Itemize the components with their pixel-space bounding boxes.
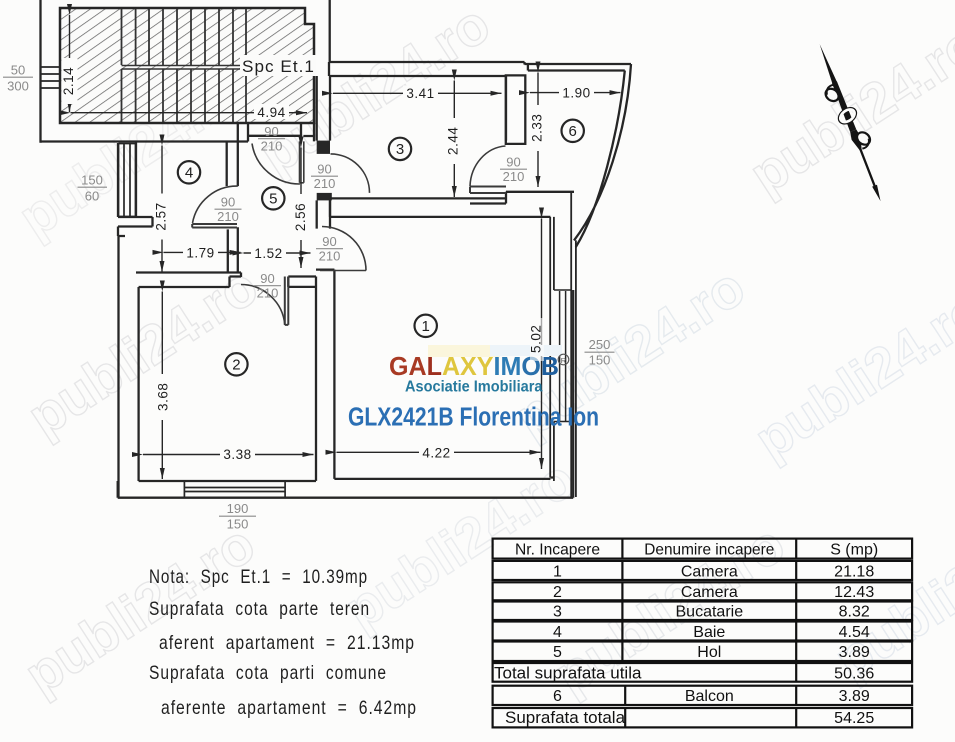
svg-text:2.44: 2.44 (446, 127, 461, 155)
svg-text:300: 300 (7, 79, 29, 94)
svg-text:6: 6 (553, 688, 562, 705)
svg-text:4.94: 4.94 (257, 105, 285, 120)
svg-text:2: 2 (553, 584, 562, 601)
svg-text:1.52: 1.52 (254, 246, 282, 261)
svg-text:5: 5 (553, 644, 562, 661)
svg-text:90: 90 (264, 124, 278, 139)
svg-text:1: 1 (553, 563, 562, 580)
svg-text:1.79: 1.79 (186, 245, 214, 260)
svg-text:5.02: 5.02 (528, 325, 543, 353)
svg-text:Denumire incapere: Denumire incapere (644, 542, 774, 559)
svg-text:150: 150 (227, 517, 249, 532)
svg-text:210: 210 (257, 286, 279, 301)
svg-text:Asociatie Imobiliara: Asociatie Imobiliara (405, 379, 543, 396)
svg-text:3.68: 3.68 (156, 383, 171, 411)
svg-text:aferente apartament = 6.42mp: aferente apartament = 6.42mp (161, 697, 417, 719)
svg-text:Camera: Camera (681, 584, 738, 601)
svg-text:3.89: 3.89 (839, 644, 870, 661)
svg-text:54.25: 54.25 (834, 710, 874, 727)
svg-text:6: 6 (569, 123, 577, 140)
svg-text:21.18: 21.18 (834, 563, 874, 580)
svg-text:210: 210 (314, 176, 336, 191)
svg-text:1.90: 1.90 (562, 86, 590, 101)
svg-text:R: R (561, 356, 567, 365)
svg-text:3.89: 3.89 (839, 688, 870, 705)
svg-text:3.38: 3.38 (223, 447, 251, 462)
svg-text:4: 4 (553, 624, 562, 641)
svg-text:4.22: 4.22 (422, 446, 450, 461)
svg-text:90: 90 (260, 271, 274, 286)
svg-text:Bucatarie: Bucatarie (676, 604, 744, 621)
svg-text:90: 90 (322, 234, 336, 249)
svg-text:4.54: 4.54 (839, 624, 870, 641)
svg-text:Suprafata cota parti comune: Suprafata cota parti comune (149, 662, 387, 684)
svg-text:150: 150 (589, 353, 611, 368)
svg-text:210: 210 (503, 169, 525, 184)
svg-text:90: 90 (317, 162, 331, 177)
svg-text:50: 50 (11, 63, 25, 78)
svg-text:2: 2 (232, 357, 240, 374)
svg-text:Hol: Hol (697, 644, 721, 661)
svg-text:3: 3 (396, 141, 404, 158)
svg-text:Nota: Spc Et.1 = 10.39mp: Nota: Spc Et.1 = 10.39mp (149, 566, 368, 588)
svg-text:50.36: 50.36 (834, 665, 874, 682)
svg-text:3.41: 3.41 (406, 86, 434, 101)
svg-text:90: 90 (221, 195, 235, 210)
svg-text:S (mp): S (mp) (830, 542, 878, 559)
svg-text:1: 1 (422, 318, 430, 335)
svg-text:Total suprafata utila: Total suprafata utila (494, 663, 642, 682)
svg-text:4: 4 (185, 165, 193, 182)
svg-text:GLX2421B Florentina Ion: GLX2421B Florentina Ion (348, 404, 599, 432)
svg-text:Suprafata cota parte teren: Suprafata cota parte teren (149, 598, 370, 620)
svg-text:Balcon: Balcon (685, 688, 734, 705)
svg-text:12.43: 12.43 (834, 584, 874, 601)
svg-text:Camera: Camera (681, 563, 738, 580)
svg-text:Suprafata totala: Suprafata totala (505, 708, 626, 727)
svg-text:3: 3 (553, 604, 562, 621)
svg-text:Spc Et.1: Spc Et.1 (242, 58, 315, 76)
svg-text:2.57: 2.57 (153, 202, 168, 230)
svg-text:2.14: 2.14 (61, 67, 76, 95)
svg-text:aferent apartament = 21.13mp: aferent apartament = 21.13mp (159, 632, 415, 654)
svg-text:210: 210 (261, 139, 283, 154)
svg-text:210: 210 (319, 249, 341, 264)
svg-text:8.32: 8.32 (839, 604, 870, 621)
svg-text:5: 5 (269, 191, 277, 208)
svg-text:250: 250 (589, 337, 611, 352)
svg-text:90: 90 (506, 155, 520, 170)
svg-text:2.56: 2.56 (293, 203, 308, 231)
svg-text:60: 60 (85, 189, 99, 204)
svg-text:Baie: Baie (693, 624, 725, 641)
svg-text:150: 150 (81, 173, 103, 188)
svg-text:2.33: 2.33 (530, 114, 545, 142)
svg-text:210: 210 (217, 209, 239, 224)
svg-text:190: 190 (227, 501, 249, 516)
svg-text:Nr. Incapere: Nr. Incapere (515, 542, 600, 559)
